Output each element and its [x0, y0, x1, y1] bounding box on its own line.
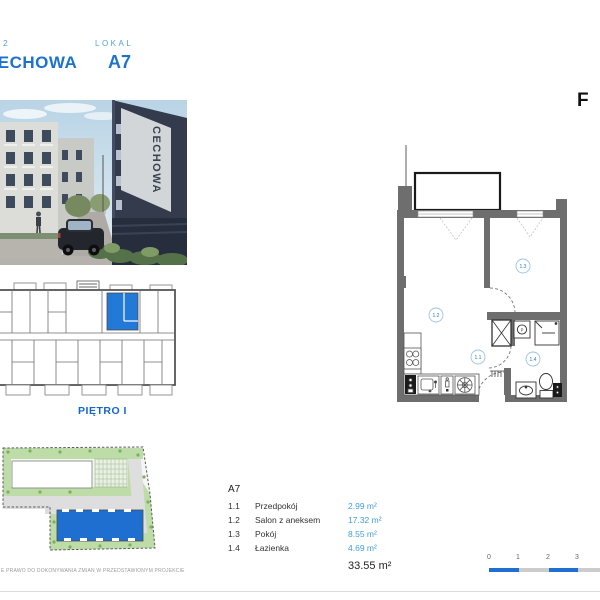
balcony	[415, 173, 500, 210]
legend-row: 1.4 Łazienka 4.69 m²	[228, 543, 418, 557]
floor-strip-plan	[0, 277, 180, 402]
svg-text:1.2: 1.2	[433, 313, 440, 319]
legend-row: 1.3 Pokój 8.55 m²	[228, 529, 418, 543]
project-name: CECHOWA	[0, 53, 77, 73]
brand-logo-letter: F	[577, 90, 589, 112]
entrance-threshold-icon	[490, 371, 504, 377]
room-number: 1.1	[228, 501, 240, 511]
room-label-bedroom: 1.3	[516, 259, 530, 273]
scale-bar: 0 1 2 3	[485, 554, 600, 576]
right-building: CECHOWA	[112, 100, 187, 265]
strip-slab-outline	[0, 290, 175, 385]
site-highlight-building	[57, 509, 143, 541]
floor-label: PIĘTRO I	[45, 405, 160, 417]
room-number: 1.3	[228, 529, 240, 539]
room-number: 1.4	[228, 543, 240, 553]
legend-unit-number: A7	[228, 484, 418, 495]
room-name: Łazienka	[255, 543, 289, 553]
room-name: Pokój	[255, 529, 276, 539]
ventilation-shaft-icon	[492, 320, 511, 346]
toilet-icon	[540, 374, 554, 399]
legend-row: 1.1 Przedpokój 2.99 m²	[228, 501, 418, 515]
room-area: 2.99 m²	[348, 501, 377, 511]
scale-segment-gray	[519, 568, 549, 572]
svg-text:1.1: 1.1	[475, 355, 482, 361]
site-building-outline	[12, 461, 92, 488]
room-label-living: 1.2	[429, 308, 443, 322]
cloud	[3, 109, 47, 119]
shower-icon	[535, 321, 559, 345]
total-area: 33.55 m²	[348, 560, 391, 572]
bath-cabinet-icon	[553, 383, 562, 397]
legend-row: 1.2 Salon z aneksem 17.32 m²	[228, 515, 418, 529]
fridge-icon	[405, 375, 416, 394]
svg-text:P: P	[521, 327, 524, 332]
tree	[90, 194, 110, 212]
cooktop-icon	[404, 348, 421, 369]
washbasin-icon	[516, 382, 536, 398]
cabinet-icon	[441, 376, 453, 394]
scale-tick: 0	[487, 554, 491, 561]
strip-balconies-bottom	[6, 385, 172, 395]
hedge	[0, 233, 62, 239]
scale-segment-blue	[489, 568, 519, 572]
disclaimer-text: E PRAWO DO DOKONYWANIA ZMIAN W PRZEDSTAW…	[1, 568, 185, 574]
stage-number: 2	[3, 38, 9, 48]
building-photo: CECHOWA	[0, 100, 187, 265]
svg-text:1.3: 1.3	[520, 264, 527, 270]
cloud	[44, 103, 96, 113]
scale-segment-gray	[578, 568, 600, 572]
walls	[397, 186, 567, 402]
room-name: Salon z aneksem	[255, 515, 320, 525]
site-plan	[0, 437, 165, 567]
scale-segment-blue	[549, 568, 578, 572]
scale-tick: 1	[516, 554, 520, 561]
room-label-bath: 1.4	[526, 352, 540, 366]
strip-highlight-unit	[107, 293, 138, 330]
room-name: Przedpokój	[255, 501, 298, 511]
unit-floor-plan: P	[380, 135, 580, 425]
burner-icon	[455, 376, 475, 394]
room-area: 8.55 m²	[348, 529, 377, 539]
page-border-line	[0, 591, 600, 592]
scale-tick: 3	[575, 554, 579, 561]
unit-number: A7	[108, 52, 131, 73]
room-area: 4.69 m²	[348, 543, 377, 553]
sink-icon	[418, 376, 439, 394]
site-parking-grove	[95, 459, 127, 487]
washing-machine-icon: P	[514, 321, 530, 338]
scale-tick: 2	[546, 554, 550, 561]
lokal-label: LOKAL	[95, 39, 133, 48]
tree	[65, 195, 91, 217]
room-number: 1.2	[228, 515, 240, 525]
cechowa-sign-text: CECHOWA	[150, 126, 162, 194]
room-area: 17.32 m²	[348, 515, 382, 525]
sidewalk	[0, 239, 62, 259]
svg-text:1.4: 1.4	[530, 357, 537, 363]
room-label-hall: 1.1	[471, 350, 485, 364]
room-legend: A7 1.1 Przedpokój 2.99 m² 1.2 Salon z an…	[228, 484, 418, 573]
page: { "header": { "stage_number": "2", "proj…	[0, 0, 600, 600]
